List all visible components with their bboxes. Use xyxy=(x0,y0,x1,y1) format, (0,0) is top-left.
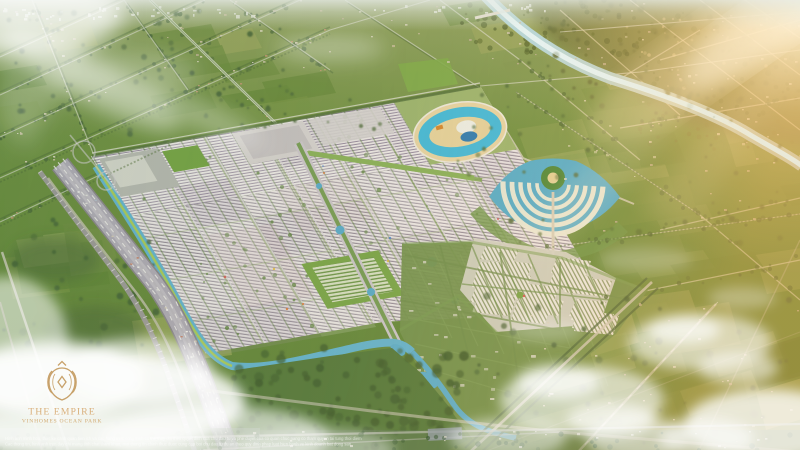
svg-text:Hinh anh minh hoa, thiet ke ca: Hinh anh minh hoa, thiet ke canh quan ti… xyxy=(5,436,362,441)
svg-text:Cac thong tin, hinh anh tren d: Cac thong tin, hinh anh tren day chi man… xyxy=(5,442,352,447)
svg-text:VINHOMES OCEAN PARK: VINHOMES OCEAN PARK xyxy=(22,419,102,425)
svg-text:THE EMPIRE: THE EMPIRE xyxy=(28,407,95,418)
